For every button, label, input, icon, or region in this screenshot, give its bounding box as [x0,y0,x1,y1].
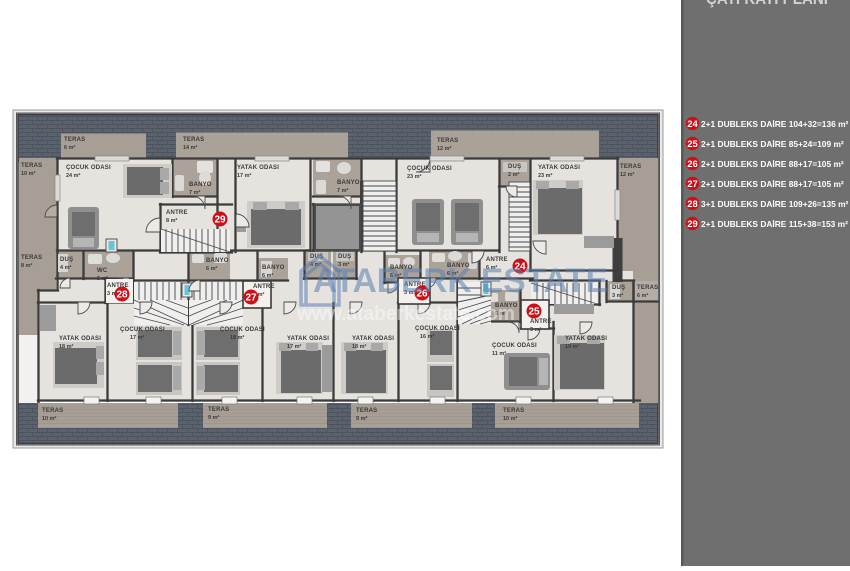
svg-text:10 m²: 10 m² [503,415,518,422]
svg-text:7 m²: 7 m² [189,189,200,196]
svg-text:4 m²: 4 m² [60,264,71,271]
svg-text:5 m²: 5 m² [97,275,108,282]
svg-text:28: 28 [116,290,128,301]
svg-text:2+1 DUBLEKS DAİRE 85+24=109 m²: 2+1 DUBLEKS DAİRE 85+24=109 m² [701,139,844,149]
svg-text:ÇATI KATI PLANI: ÇATI KATI PLANI [706,0,828,8]
svg-text:BANYO: BANYO [189,182,212,188]
svg-text:25: 25 [528,307,540,318]
svg-text:10 m²: 10 m² [21,170,36,177]
svg-text:3 m²: 3 m² [612,292,623,299]
svg-text:9 m²: 9 m² [356,415,367,422]
svg-text:TERAS: TERAS [64,137,85,143]
svg-text:ÇOCUK ODASI: ÇOCUK ODASI [407,166,452,172]
svg-text:10 m²: 10 m² [42,415,57,422]
svg-text:TERAS: TERAS [637,285,658,291]
svg-text:BANYO: BANYO [206,258,229,264]
svg-text:YATAK ODASI: YATAK ODASI [287,336,329,342]
svg-text:17 m²: 17 m² [130,334,145,341]
svg-text:12 m²: 12 m² [437,145,452,152]
svg-text:27: 27 [245,293,257,304]
svg-text:25: 25 [687,139,698,150]
svg-text:7 m²: 7 m² [337,187,348,194]
svg-text:3 m²: 3 m² [530,326,541,333]
svg-text:DUŞ: DUŞ [508,164,521,170]
svg-text:6 m²: 6 m² [64,144,75,151]
svg-text:ÇOCUK ODASI: ÇOCUK ODASI [492,343,537,349]
svg-text:TERAS: TERAS [620,164,641,170]
svg-text:YATAK ODASI: YATAK ODASI [538,165,580,171]
svg-text:YATAK ODASI: YATAK ODASI [59,336,101,342]
svg-text:ÇOCUK ODASI: ÇOCUK ODASI [120,327,165,333]
svg-text:BANYO: BANYO [337,180,360,186]
svg-text:18 m²: 18 m² [59,343,74,350]
svg-text:YATAK ODASI: YATAK ODASI [352,336,394,342]
svg-text:BANYO: BANYO [262,265,285,271]
svg-text:14 m²: 14 m² [183,144,198,151]
svg-text:11 m²: 11 m² [492,350,506,357]
svg-text:18 m²: 18 m² [352,343,367,350]
svg-text:27: 27 [687,179,698,190]
svg-text:ANTRE: ANTRE [530,319,552,325]
svg-text:28: 28 [687,199,698,210]
svg-text:3+1 DUBLEKS DAİRE 109+26=135 m: 3+1 DUBLEKS DAİRE 109+26=135 m² [701,199,849,209]
svg-text:TERAS: TERAS [503,408,524,414]
svg-text:24: 24 [687,119,698,130]
svg-text:6 m²: 6 m² [637,292,648,299]
svg-text:24 m²: 24 m² [66,172,81,179]
svg-text:12 m²: 12 m² [620,171,635,178]
svg-text:2+1 DUBLEKS DAİRE 88+17=105 m²: 2+1 DUBLEKS DAİRE 88+17=105 m² [701,179,844,189]
svg-text:DUŞ: DUŞ [60,257,73,263]
svg-text:TERAS: TERAS [356,408,377,414]
svg-text:17 m²: 17 m² [237,172,252,179]
svg-text:26: 26 [687,159,698,170]
svg-text:DUŞ: DUŞ [612,285,625,291]
svg-text:ÇOCUK ODASI: ÇOCUK ODASI [415,326,460,332]
svg-text:2+1 DUBLEKS DAİRE 104+32=136 m: 2+1 DUBLEKS DAİRE 104+32=136 m² [701,119,849,129]
svg-text:ANTRE: ANTRE [253,284,275,290]
svg-text:DUŞ: DUŞ [338,254,351,260]
svg-text:23 m²: 23 m² [407,173,422,180]
svg-text:19 m²: 19 m² [565,343,580,350]
svg-text:6 m²: 6 m² [262,272,273,279]
svg-text:TERAS: TERAS [21,163,42,169]
svg-text:TERAS: TERAS [21,255,42,261]
svg-text:29: 29 [687,219,698,230]
svg-text:ATABERK ESTATE: ATABERK ESTATE [313,262,608,300]
svg-text:17 m²: 17 m² [287,343,302,350]
svg-text:TERAS: TERAS [183,137,204,143]
svg-text:ÇOCUK ODASI: ÇOCUK ODASI [66,165,111,171]
svg-text:6 m²: 6 m² [206,265,217,272]
svg-text:8 m²: 8 m² [21,262,32,269]
svg-text:YATAK ODASI: YATAK ODASI [237,165,279,171]
svg-text:23 m²: 23 m² [538,172,553,179]
svg-text:ÇOCUK ODASI: ÇOCUK ODASI [220,327,265,333]
svg-text:18 m²: 18 m² [230,334,245,341]
svg-text:9 m²: 9 m² [208,414,219,421]
svg-text:TERAS: TERAS [437,138,458,144]
svg-text:TERAS: TERAS [42,408,63,414]
svg-text:YATAK ODASI: YATAK ODASI [565,336,607,342]
svg-text:8 m²: 8 m² [166,217,177,224]
svg-text:TERAS: TERAS [208,407,229,413]
svg-text:16 m²: 16 m² [420,333,435,340]
svg-text:2 m²: 2 m² [508,171,519,178]
svg-text:2+1 DUBLEKS DAİRE 88+17=105 m²: 2+1 DUBLEKS DAİRE 88+17=105 m² [701,159,844,169]
svg-text:www.ataberkestate.com: www.ataberkestate.com [296,303,515,325]
svg-text:2+1 DUBLEKS DAİRE 115+38=153 m: 2+1 DUBLEKS DAİRE 115+38=153 m² [701,219,848,229]
svg-text:29: 29 [214,215,226,226]
svg-text:WC: WC [97,268,108,274]
svg-text:ANTRE: ANTRE [166,210,188,216]
